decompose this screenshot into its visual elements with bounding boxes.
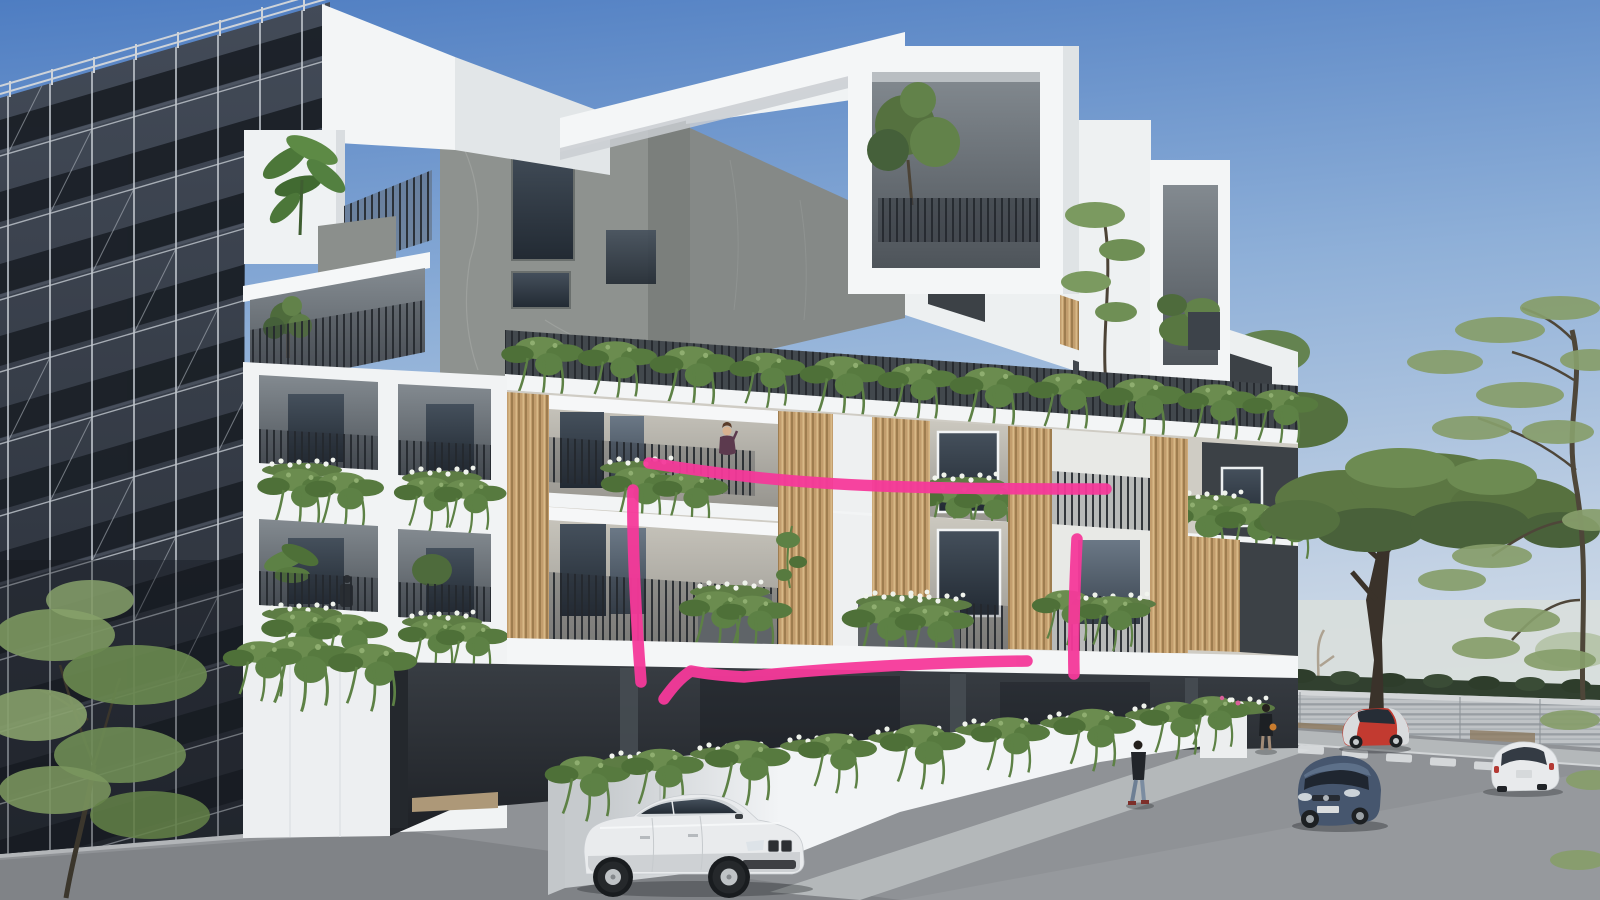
rooftop-frame-left xyxy=(848,46,1079,294)
suv-mirror xyxy=(735,814,743,819)
suv-grille xyxy=(768,840,779,852)
stone-window-low xyxy=(512,272,570,308)
scene-canvas xyxy=(0,0,1600,900)
outline-right-stroke xyxy=(1074,539,1077,674)
rendered-photo xyxy=(0,0,1600,900)
terrace-railing xyxy=(878,198,1040,242)
rooftop-frame-right xyxy=(1150,160,1230,405)
